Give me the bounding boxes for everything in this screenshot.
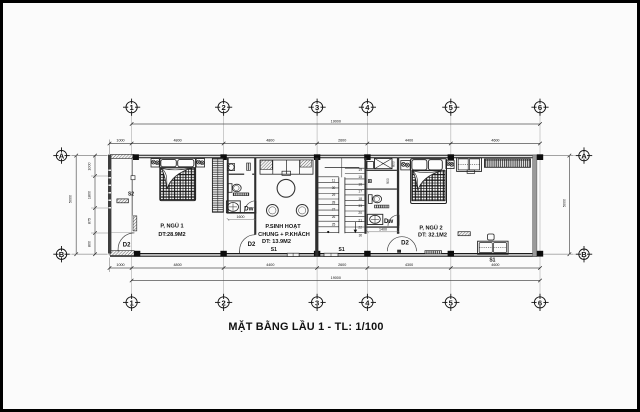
svg-text:1800: 1800 bbox=[88, 191, 92, 199]
svg-text:DT: 13.9M2: DT: 13.9M2 bbox=[262, 239, 291, 245]
svg-text:30: 30 bbox=[359, 234, 363, 238]
svg-text:25: 25 bbox=[332, 222, 336, 226]
svg-text:A: A bbox=[59, 152, 65, 161]
svg-text:20: 20 bbox=[358, 211, 362, 215]
svg-text:Dw: Dw bbox=[244, 206, 253, 213]
svg-text:21: 21 bbox=[358, 218, 362, 222]
svg-text:3: 3 bbox=[315, 298, 319, 307]
svg-text:3: 3 bbox=[315, 103, 319, 112]
svg-text:2: 2 bbox=[221, 103, 225, 112]
svg-text:P.SINH HOẠT: P.SINH HOẠT bbox=[265, 224, 301, 230]
svg-text:875: 875 bbox=[88, 218, 92, 224]
svg-text:4800: 4800 bbox=[173, 263, 181, 267]
svg-text:28: 28 bbox=[332, 200, 336, 204]
svg-text:CHUNG + P.KHÁCH: CHUNG + P.KHÁCH bbox=[258, 231, 310, 238]
svg-text:S1: S1 bbox=[489, 257, 495, 263]
svg-text:26: 26 bbox=[332, 215, 336, 219]
svg-text:4300: 4300 bbox=[405, 263, 413, 267]
svg-text:S2: S2 bbox=[128, 191, 134, 197]
svg-text:P, NGỦ 1: P, NGỦ 1 bbox=[160, 223, 183, 230]
svg-text:D2: D2 bbox=[248, 242, 256, 248]
svg-text:27: 27 bbox=[332, 208, 336, 212]
svg-text:S1: S1 bbox=[339, 247, 345, 253]
svg-text:19: 19 bbox=[358, 168, 362, 172]
svg-text:MẶT BẰNG LẦU 1 - TL: 1/100: MẶT BẰNG LẦU 1 - TL: 1/100 bbox=[228, 320, 383, 333]
svg-text:B: B bbox=[59, 250, 65, 259]
svg-text:19000: 19000 bbox=[331, 119, 341, 123]
svg-text:1600: 1600 bbox=[237, 215, 245, 219]
svg-text:4600: 4600 bbox=[491, 139, 499, 143]
svg-text:1000: 1000 bbox=[116, 263, 124, 267]
svg-text:5000: 5000 bbox=[562, 199, 566, 207]
svg-text:1400: 1400 bbox=[379, 228, 387, 232]
svg-text:4400: 4400 bbox=[405, 139, 413, 143]
svg-text:4600: 4600 bbox=[491, 263, 499, 267]
svg-text:17: 17 bbox=[358, 190, 362, 194]
svg-text:11: 11 bbox=[332, 179, 336, 183]
svg-text:4800: 4800 bbox=[173, 139, 181, 143]
svg-text:2600: 2600 bbox=[338, 263, 346, 267]
svg-text:15: 15 bbox=[358, 175, 362, 179]
svg-text:DT:28.9M2: DT:28.9M2 bbox=[158, 232, 185, 238]
svg-text:29: 29 bbox=[332, 193, 336, 197]
svg-text:22: 22 bbox=[358, 226, 362, 230]
svg-text:900: 900 bbox=[386, 178, 390, 184]
svg-text:19000: 19000 bbox=[331, 276, 341, 280]
svg-text:800: 800 bbox=[391, 161, 395, 167]
svg-text:6: 6 bbox=[538, 103, 542, 112]
svg-text:1000: 1000 bbox=[88, 162, 92, 170]
svg-text:DT: 32.1M2: DT: 32.1M2 bbox=[418, 233, 447, 239]
svg-text:S1: S1 bbox=[271, 247, 277, 253]
svg-text:2600: 2600 bbox=[338, 139, 346, 143]
svg-text:4800: 4800 bbox=[266, 139, 274, 143]
svg-text:6: 6 bbox=[538, 298, 542, 307]
svg-text:33: 33 bbox=[358, 204, 362, 208]
svg-text:P, NGỦ 2: P, NGỦ 2 bbox=[419, 225, 442, 232]
svg-text:B: B bbox=[581, 250, 587, 259]
svg-text:2: 2 bbox=[221, 298, 225, 307]
svg-text:Dw: Dw bbox=[384, 218, 393, 225]
svg-text:D2: D2 bbox=[123, 242, 131, 248]
svg-text:16: 16 bbox=[358, 182, 362, 186]
svg-text:800: 800 bbox=[88, 241, 92, 247]
svg-text:5000: 5000 bbox=[69, 195, 73, 203]
svg-text:1000: 1000 bbox=[116, 139, 124, 143]
svg-text:30: 30 bbox=[332, 186, 336, 190]
svg-text:A: A bbox=[581, 152, 587, 161]
svg-text:18: 18 bbox=[358, 197, 362, 201]
svg-text:D2: D2 bbox=[401, 241, 409, 247]
svg-text:4400: 4400 bbox=[266, 263, 274, 267]
